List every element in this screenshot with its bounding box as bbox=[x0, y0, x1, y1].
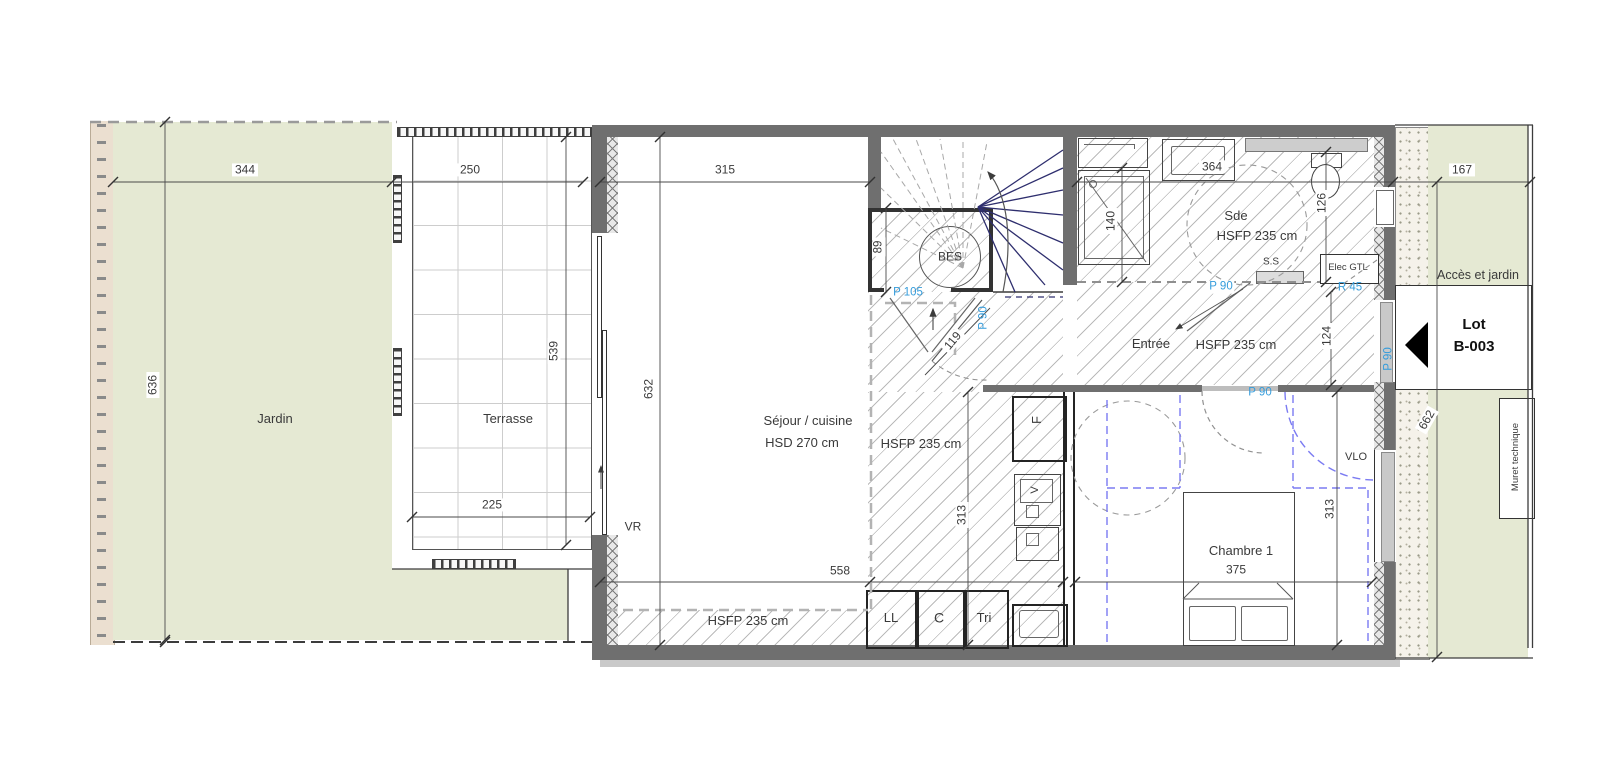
dim-364: 364 bbox=[1199, 160, 1225, 173]
bes-wall-top bbox=[868, 208, 993, 212]
door-p90-chambre-label: P 90 bbox=[1248, 387, 1271, 400]
sde-name-label: Sde bbox=[1224, 209, 1247, 223]
entry-arrow-icon bbox=[1405, 322, 1428, 368]
gravel-path-top bbox=[1395, 127, 1430, 287]
acces-jardin-label: Accès et jardin bbox=[1437, 269, 1519, 283]
tri-label: Tri bbox=[977, 611, 992, 625]
door-p105-label: P 105 bbox=[893, 287, 923, 300]
sejour-ceiling-label: HSD 270 cm bbox=[765, 436, 839, 450]
jardin-label: Jardin bbox=[257, 412, 292, 426]
ss-step bbox=[1256, 271, 1304, 284]
sejour-bay-window-pane2 bbox=[602, 330, 607, 535]
bes-wall-stub bbox=[868, 288, 884, 292]
dim-632: 632 bbox=[642, 376, 655, 402]
terrasse-edge-left-1 bbox=[393, 175, 402, 243]
sejour-low-ceiling-label: HSFP 235 cm bbox=[881, 437, 962, 451]
fence-posts bbox=[97, 124, 106, 642]
entry-door-leaf bbox=[1380, 302, 1393, 383]
cooker-label: V bbox=[1029, 486, 1041, 493]
washer-label: LL bbox=[884, 611, 898, 625]
dim-140: 140 bbox=[1104, 208, 1117, 234]
sejour-name-label: Séjour / cuisine bbox=[764, 414, 853, 428]
fridge-label: F bbox=[1030, 416, 1044, 424]
high-window-band bbox=[1245, 138, 1368, 152]
hob-burner-1 bbox=[1026, 505, 1039, 518]
insulation-right-4 bbox=[1374, 562, 1384, 645]
dim-250: 250 bbox=[457, 163, 483, 176]
dim-344: 344 bbox=[232, 163, 258, 176]
terrasse-edge-bottom bbox=[432, 559, 516, 569]
chambre-window-sill bbox=[1381, 452, 1395, 562]
entree-low-ceiling-label: HSFP 235 cm bbox=[1196, 338, 1277, 352]
acces-jardin-area bbox=[1428, 125, 1528, 285]
door-p90-stair-label: P 90 bbox=[978, 306, 991, 329]
door-p90-entry-label: P 90 bbox=[1383, 347, 1396, 370]
dim-636: 636 bbox=[146, 372, 159, 398]
bes-wall-bottom bbox=[951, 288, 993, 292]
kitchen-sink-bowl bbox=[1019, 610, 1059, 638]
door-r45-label: R 45 bbox=[1338, 282, 1362, 295]
dim-126: 126 bbox=[1315, 190, 1328, 216]
wall-stair-right bbox=[1063, 137, 1077, 285]
door-p90-sde-label: P 90 bbox=[1207, 281, 1234, 294]
wall-entree-chambre-right bbox=[1278, 385, 1374, 392]
insulation-right-3 bbox=[1374, 382, 1384, 450]
dim-375: 375 bbox=[1223, 563, 1249, 576]
lot-title-label: Lot bbox=[1462, 317, 1485, 334]
insulation-left-top bbox=[607, 137, 618, 233]
dim-89: 89 bbox=[873, 238, 886, 257]
hatch-corridor bbox=[868, 292, 1063, 392]
dim-539: 539 bbox=[547, 338, 560, 364]
wall-left-bottom bbox=[592, 535, 607, 645]
wall-top bbox=[592, 125, 1395, 137]
dim-313-chambre: 313 bbox=[1323, 496, 1336, 522]
dim-315: 315 bbox=[712, 163, 738, 176]
fridge-box bbox=[1012, 396, 1067, 462]
ss-label: S.S bbox=[1263, 257, 1279, 268]
sde-window-frame bbox=[1376, 190, 1394, 225]
insulation-right-1 bbox=[1374, 137, 1384, 187]
sde-shelf bbox=[1078, 138, 1148, 168]
bes-label: BES bbox=[938, 250, 962, 263]
hob-burner-2 bbox=[1026, 533, 1039, 546]
wall-stair-left bbox=[868, 137, 881, 208]
jardin-area-lower bbox=[392, 569, 568, 640]
wall-entree-chambre-left bbox=[983, 385, 1202, 392]
wall-left-top bbox=[592, 125, 607, 233]
bottom-low-ceiling-label: HSFP 235 cm bbox=[708, 614, 789, 628]
dim-124: 124 bbox=[1320, 323, 1333, 349]
entree-name-label: Entrée bbox=[1132, 337, 1170, 351]
dim-558: 558 bbox=[827, 564, 853, 577]
pillow-2 bbox=[1241, 606, 1288, 641]
chambre-name-label: Chambre 1 bbox=[1209, 544, 1273, 558]
pillow-1 bbox=[1189, 606, 1236, 641]
sde-shelf-inner bbox=[1084, 144, 1135, 149]
dim-313-kitchen: 313 bbox=[955, 502, 968, 528]
muret-technique-label: Muret technique bbox=[1511, 423, 1521, 491]
terrasse-edge-left-2 bbox=[393, 348, 402, 416]
bes-wall-right bbox=[989, 208, 993, 292]
terrasse-tiles bbox=[412, 135, 592, 550]
sde-low-ceiling-label: HSFP 235 cm bbox=[1217, 229, 1298, 243]
terrasse-label: Terrasse bbox=[483, 412, 533, 426]
vlo-label: VLO bbox=[1345, 451, 1367, 463]
elec-gtl-label: Elec GTL bbox=[1328, 263, 1368, 273]
terrasse-edge-top bbox=[397, 127, 592, 137]
dim-225: 225 bbox=[479, 498, 505, 511]
floor-plan: Jardin Terrasse Séjour / cuisine HSD 270… bbox=[0, 0, 1620, 757]
dim-167: 167 bbox=[1449, 163, 1475, 176]
vr-label: VR bbox=[625, 520, 642, 533]
insulation-left-bottom bbox=[607, 535, 618, 645]
c-label: C bbox=[934, 610, 944, 625]
lot-number-label: B-003 bbox=[1454, 339, 1495, 356]
bes-wall-left bbox=[868, 208, 872, 292]
wall-shadow bbox=[600, 660, 1400, 667]
